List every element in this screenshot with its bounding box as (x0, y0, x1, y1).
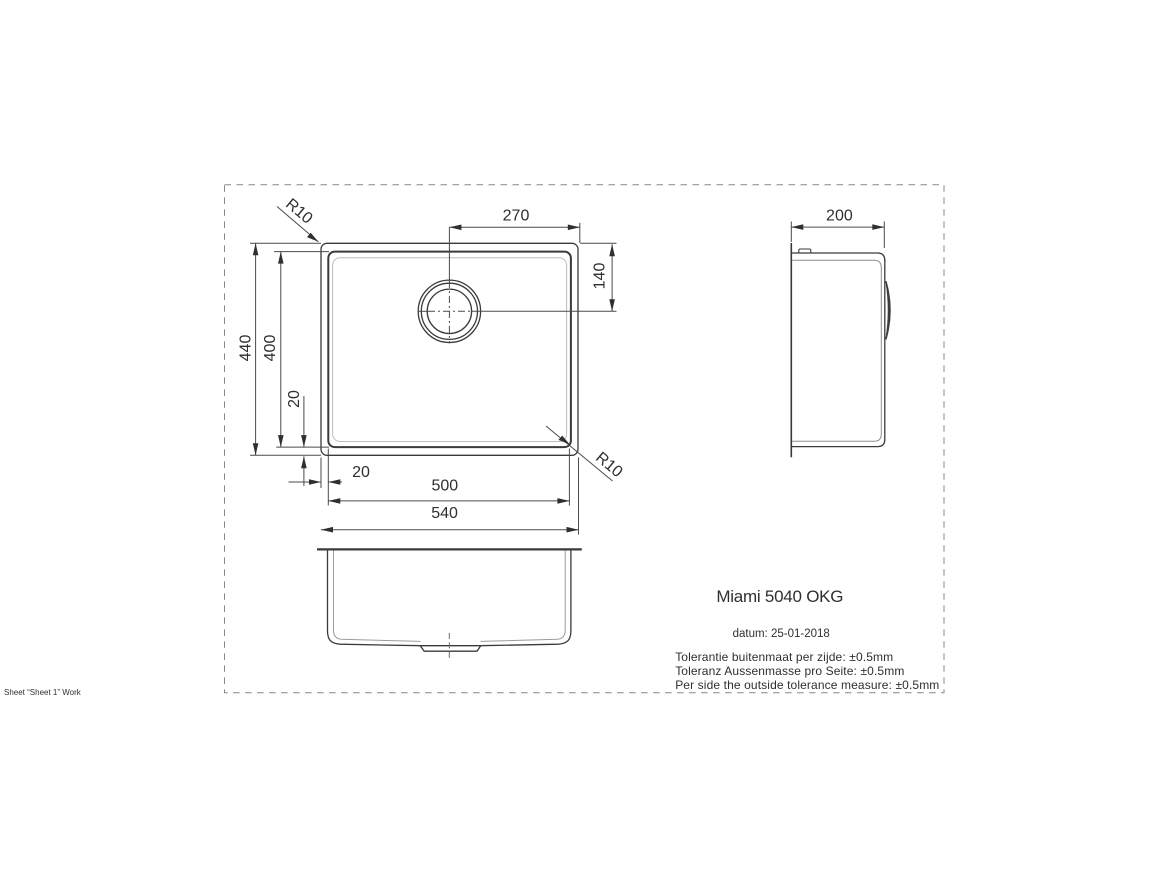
svg-text:20: 20 (286, 390, 303, 408)
svg-text:R10: R10 (592, 449, 625, 481)
svg-text:Per side the outside tolerance: Per side the outside tolerance measure: … (675, 678, 939, 692)
svg-text:140: 140 (592, 263, 609, 290)
svg-text:Toleranz Aussenmasse pro Seite: Toleranz Aussenmasse pro Seite: ±0.5mm (675, 664, 904, 678)
svg-text:400: 400 (262, 335, 279, 362)
svg-text:20: 20 (352, 464, 370, 481)
svg-text:Miami 5040 OKG: Miami 5040 OKG (716, 587, 843, 606)
svg-text:440: 440 (238, 335, 255, 362)
svg-text:540: 540 (431, 505, 458, 522)
svg-text:270: 270 (503, 208, 530, 225)
svg-text:Sheet “Sheet 1” Work: Sheet “Sheet 1” Work (4, 688, 82, 697)
svg-text:datum: 25-01-2018: datum: 25-01-2018 (733, 628, 830, 640)
svg-text:200: 200 (826, 208, 853, 225)
svg-text:Tolerantie buitenmaat per zijd: Tolerantie buitenmaat per zijde: ±0.5mm (675, 650, 893, 664)
svg-text:R10: R10 (282, 196, 315, 228)
svg-text:500: 500 (431, 478, 458, 495)
